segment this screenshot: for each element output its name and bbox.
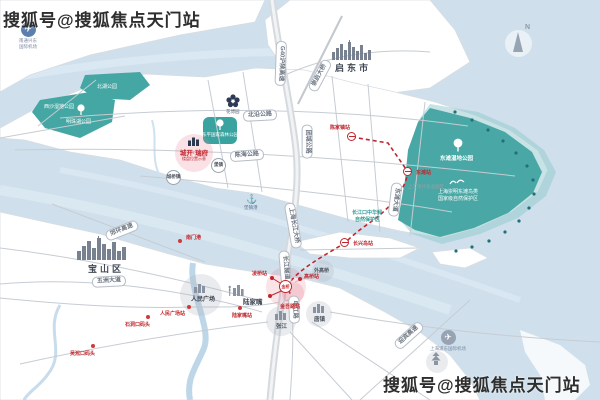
flower-expo-logo-icon (225, 93, 241, 109)
airplane-icon: ✈ (441, 330, 456, 345)
watermark-top: 搜狐号@搜狐焦点天门站 (3, 6, 201, 31)
road-pill-beiyan: 北沿公路 (243, 109, 278, 122)
station-label-lingqiao: 凌桥站 (252, 270, 267, 277)
lujiazui-station-label: 陆家嘴站 (232, 312, 252, 319)
ferry-label-wusongkou: 吴淞口码头 (70, 350, 95, 357)
tree-icon (215, 119, 225, 131)
project-building-icon (188, 137, 200, 146)
buildings-icon (275, 310, 287, 320)
pagoda-icon (430, 352, 442, 366)
buildings-icon (194, 283, 206, 293)
road-pill-tuancheng: 团城公路 (301, 125, 312, 159)
flower-expo-label: 花博园 (226, 109, 240, 115)
metro-station-changxingdao (340, 238, 349, 247)
tree-icon (452, 138, 464, 152)
road-pill-g40: G40沪陕高速 (274, 41, 287, 87)
metro-station-dongtan (403, 167, 412, 176)
project-note-label: 楼盘位置示意 (172, 156, 216, 162)
renmin-square-label: 人民广场 (191, 294, 215, 303)
chengqiao-town-badge: 城桥镇 (166, 170, 181, 185)
anchor-icon: ⚓ (246, 194, 257, 205)
baoshan-skyline-icon (76, 236, 132, 260)
sturgeon-reserve-label-2: 自然保护区 (355, 217, 380, 224)
tangzhen-label: 唐镇 (314, 315, 325, 323)
map-canvas: 搜狐号@搜狐焦点天门站 搜狐号@搜狐焦点天门站 N 启东市 宝山区 ✈ 南通兴东… (0, 0, 600, 400)
jinqiao-badge: 金桥 (279, 280, 292, 293)
road-pill-wuzhou-avenue: 五洲大道 (92, 275, 127, 288)
lujiazui-label: 陆家嘴 (243, 296, 263, 306)
watermark-bottom: 搜狐号@搜狐焦点天门站 (383, 371, 581, 396)
agri-park-label: 上实现代农业园区 (408, 184, 444, 190)
dongping-forest-park-label: 东平国家森林公园 (201, 132, 239, 138)
waigaoqiao-label: 外高桥 (314, 267, 329, 274)
northwest-airport-label-2: 国际机场 (12, 44, 44, 50)
lujiazui-towers-icon (228, 284, 244, 296)
qidong-skyline-icon (331, 40, 375, 60)
map-base-art (0, 0, 600, 400)
station-label-changxingdao: 长兴岛站 (353, 240, 373, 247)
zhangjiang-label: 张江 (276, 322, 287, 330)
station-label-dongtan: 东滩站 (416, 169, 431, 176)
station-label-chenjiazhen: 陈家镇站 (330, 124, 350, 131)
mingzhu-lake-label: 明珠湖公园 (66, 118, 91, 125)
xisha-wetland-label: 西沙湿地公园 (44, 103, 74, 110)
station-label-jinwulu: 金吾路站 (280, 303, 300, 310)
pudong-airport-marker: ✈ 上海浦东国际机场 (428, 330, 468, 352)
tree-icon (76, 104, 86, 116)
buildings-icon (313, 303, 325, 313)
ferry-label-shidongkou: 石洞口码头 (125, 321, 150, 328)
compass: N (504, 24, 534, 60)
bird-icon (449, 178, 465, 186)
sturgeon-reserve-label-1: 长江口中华鲟 (352, 210, 382, 217)
baozhen-port-label: 堡镇港 (244, 205, 258, 211)
dongtan-wetland-park-label: 东滩湿地公园 (440, 154, 473, 162)
baoshan-district-label: 宝山区 (88, 262, 124, 275)
bird-reserve-label-2: 国家级自然保护区 (438, 195, 478, 202)
qidong-city-label: 启东市 (335, 61, 371, 74)
compass-north-label: N (525, 24, 530, 31)
compass-needle-icon (513, 32, 523, 52)
renmin-station-label: 人民广场站 (160, 310, 185, 317)
metro-station-chenjiazhen (347, 132, 356, 141)
north-lake-park-label: 北湖公园 (97, 83, 117, 90)
station-label-gaoqiao: 高桥站 (304, 273, 319, 280)
bird-reserve-label-1: 上海崇明东滩鸟类 (438, 188, 478, 195)
ferry-label-nanmen: 南门港 (186, 234, 201, 241)
pudong-airport-label: 上海浦东国际机场 (428, 346, 468, 352)
